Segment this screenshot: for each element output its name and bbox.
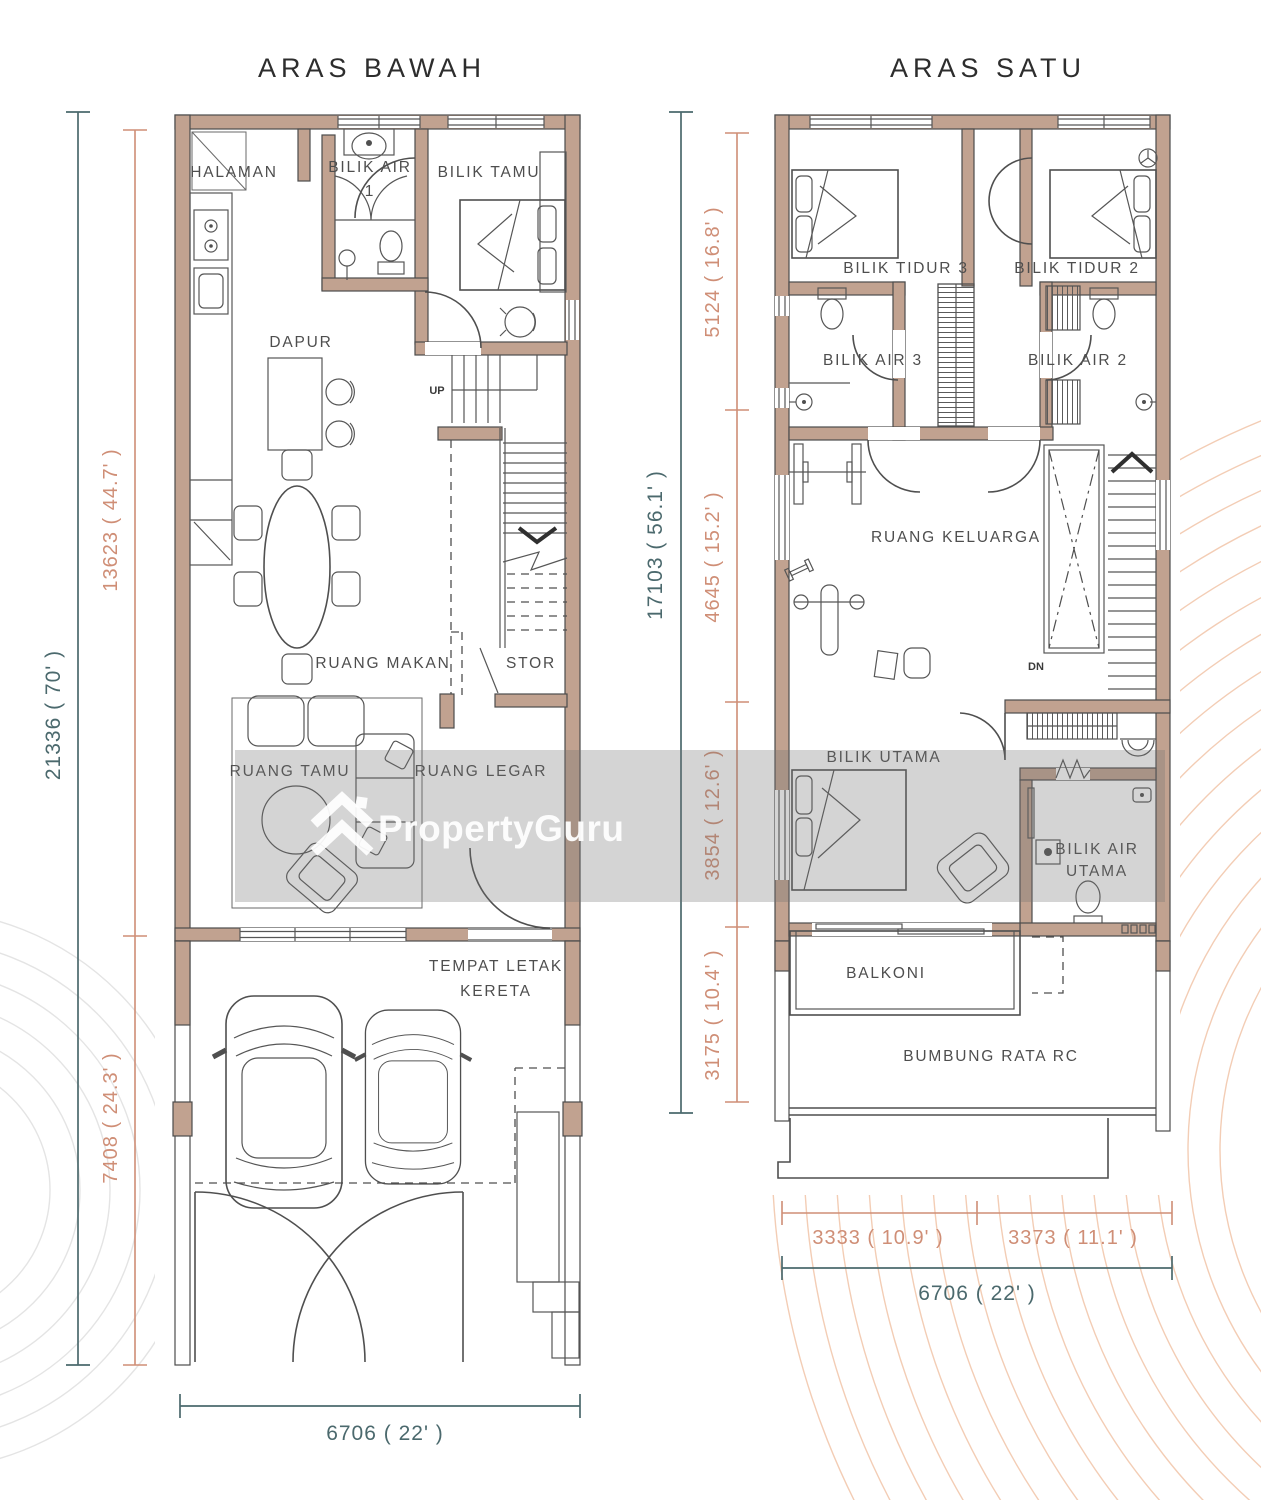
window <box>566 300 579 340</box>
dim-right-seg4: 3175 ( 10.4' ) <box>702 949 724 1080</box>
stair-up-label: UP <box>429 385 444 397</box>
room-label-kereta: KERETA <box>460 983 532 1000</box>
window <box>240 928 406 941</box>
watermark-band <box>235 750 1165 902</box>
dim-left-lower: 7408 ( 24.3' ) <box>100 1052 122 1183</box>
room-label-ruang-keluarga: RUANG KELUARGA <box>871 529 1041 546</box>
right-plan-title: ARAS SATU <box>890 53 1086 83</box>
dim-right-seg2: 4645 ( 15.2' ) <box>702 491 724 622</box>
left-plan-title: ARAS BAWAH <box>258 53 486 83</box>
room-label-bilik-tidur-2: BILIK TIDUR 2 <box>1014 260 1140 277</box>
dim-left-width: 6706 ( 22' ) <box>326 1422 444 1445</box>
room-label-halaman: HALAMAN <box>190 164 278 181</box>
room-label-bilik-tidur-3: BILIK TIDUR 3 <box>843 260 969 277</box>
wardrobe <box>1046 286 1080 330</box>
room-label-tempat-letak: TEMPAT LETAK <box>429 958 563 975</box>
room-label-dapur: DAPUR <box>269 334 332 351</box>
dim-right-bottom-right: 3373 ( 11.1' ) <box>1008 1227 1138 1249</box>
wardrobe <box>1046 380 1080 424</box>
room-label-stor: STOR <box>506 655 556 672</box>
room-label-bilik-air-3: BILIK AIR 3 <box>823 352 923 369</box>
room-label-bilik-air-1-num: 1 <box>365 183 375 200</box>
dim-right-bottom-left: 3333 ( 10.9' ) <box>812 1227 943 1249</box>
room-label-bumbung: BUMBUNG RATA RC <box>903 1048 1078 1065</box>
room-label-balkoni: BALKONI <box>846 965 926 982</box>
room-label-bilik-air-1: BILIK AIR <box>328 159 411 176</box>
floor-plan-image: 21336 ( 70' ) 13623 ( 44.7' ) 7408 ( 24.… <box>0 0 1261 1500</box>
watermark-brand: PropertyGuru <box>378 808 625 849</box>
room-label-bilik-tamu: BILIK TAMU <box>438 164 541 181</box>
stair-dn-label: DN <box>1028 661 1044 673</box>
dim-right-total-height: 17103 ( 56.1' ) <box>644 470 667 620</box>
dim-right-bottom-total: 6706 ( 22' ) <box>918 1282 1036 1305</box>
room-label-ruang-makan: RUANG MAKAN <box>315 655 450 672</box>
dim-left-upper: 13623 ( 44.7' ) <box>100 448 122 591</box>
dim-right-seg1: 5124 ( 16.8' ) <box>702 206 724 337</box>
dim-left-total-height: 21336 ( 70' ) <box>42 650 65 780</box>
watermark: PropertyGuru <box>235 750 1165 902</box>
room-label-bilik-air-2: BILIK AIR 2 <box>1028 352 1128 369</box>
floor-plan-canvas: 21336 ( 70' ) 13623 ( 44.7' ) 7408 ( 24.… <box>0 0 1261 1500</box>
